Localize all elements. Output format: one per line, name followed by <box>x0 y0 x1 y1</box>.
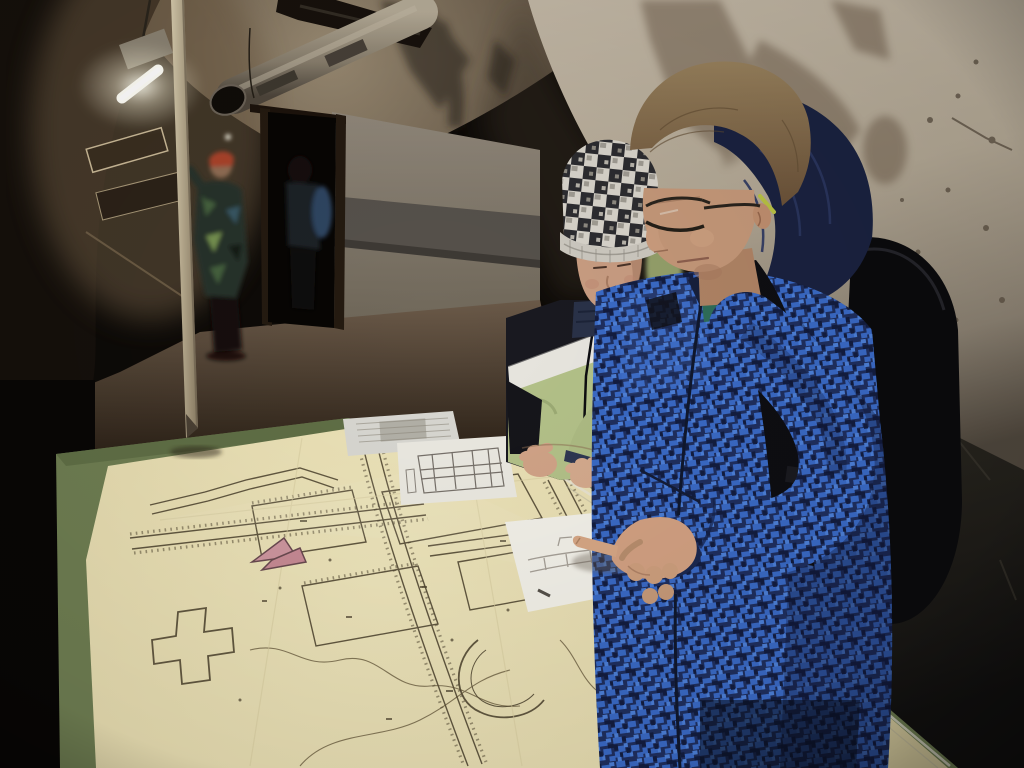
vignette <box>0 0 1024 768</box>
bunker-photo <box>0 0 1024 768</box>
